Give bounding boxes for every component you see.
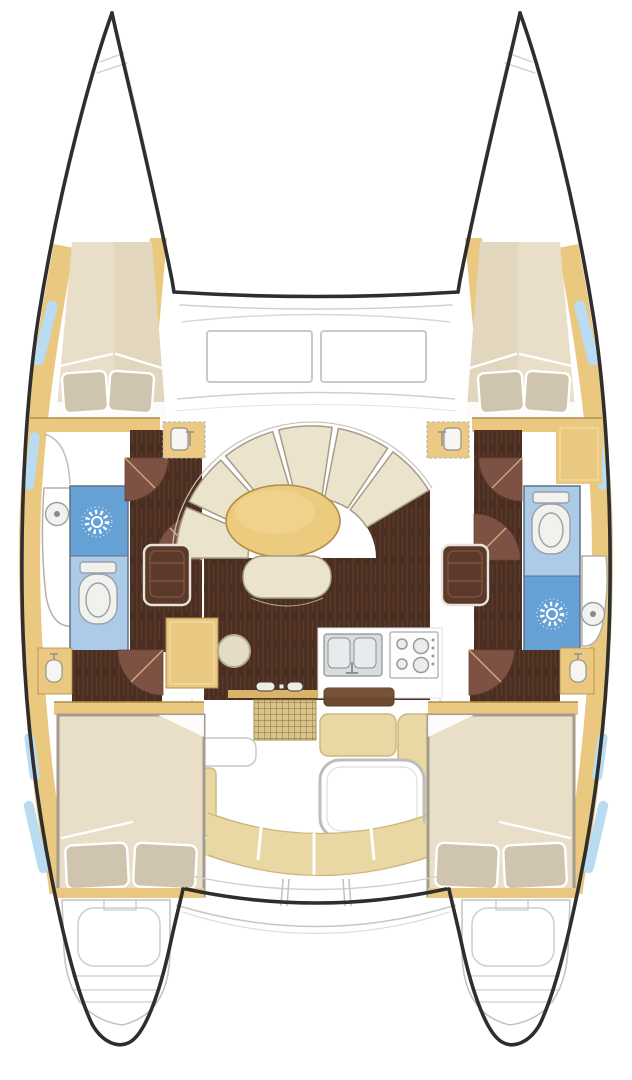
pillow xyxy=(503,842,567,889)
coachroof-front-edge xyxy=(182,315,450,323)
fwd-cabinet-starboard xyxy=(427,422,469,458)
cockpit-grating-grid xyxy=(254,700,316,740)
nav-cabinet xyxy=(166,618,218,688)
port-shower xyxy=(70,486,128,556)
companionway-track xyxy=(256,682,275,691)
pillow xyxy=(65,842,129,889)
transoms xyxy=(62,876,570,1025)
toilet-tank-icon xyxy=(80,562,116,573)
pillow xyxy=(435,842,499,889)
forward-crossbeam xyxy=(174,292,458,297)
deck-plan-svg xyxy=(0,0,632,1080)
toilet-tank-icon xyxy=(533,492,569,503)
port-fwd-bulkhead xyxy=(30,418,160,432)
catamaran-deck-plan xyxy=(0,0,632,1080)
aft-crossbeam-line2 xyxy=(182,912,450,934)
cockpit-locker-seat xyxy=(198,738,256,766)
galley-step-top xyxy=(324,688,394,697)
coachroof xyxy=(175,305,457,411)
pillow xyxy=(478,371,525,414)
stove-knob-icon xyxy=(432,655,435,658)
round-stool xyxy=(218,635,250,667)
pillow xyxy=(524,371,571,414)
cockpit-bench-cushion xyxy=(320,714,396,756)
mini-sink-icon xyxy=(570,660,586,682)
companionway-track xyxy=(287,682,303,691)
burner-icon xyxy=(414,639,429,654)
companionway-latch xyxy=(279,684,284,689)
pillow xyxy=(108,371,155,414)
stbd-aft-bulkhead xyxy=(428,702,578,715)
coachroof-window xyxy=(321,331,426,382)
stove-knob-icon xyxy=(432,647,435,650)
mini-sink-icon xyxy=(444,428,461,450)
aft-cabin-starboard xyxy=(428,648,594,898)
coachroof-window xyxy=(207,331,312,382)
stove-knob-icon xyxy=(432,639,435,642)
mini-sink-icon xyxy=(46,660,62,682)
fwd-cabinet-port xyxy=(163,422,205,458)
aft-crossbeam xyxy=(186,889,446,903)
salon-table-highlight xyxy=(235,490,315,534)
burner-icon xyxy=(397,639,407,649)
basin-drain-icon xyxy=(590,611,596,617)
stbd-shower xyxy=(524,576,580,652)
aft-crossbeam-line1 xyxy=(176,905,456,927)
basin-drain-icon xyxy=(54,511,60,517)
stbd-wardrobe xyxy=(556,424,602,484)
cockpit xyxy=(192,700,440,878)
pillow xyxy=(133,842,197,889)
burner-icon xyxy=(414,658,429,673)
salon-bench xyxy=(243,556,331,598)
aft-bench-cushions xyxy=(208,834,428,855)
port-counter-line xyxy=(44,434,70,484)
mini-sink-icon xyxy=(171,428,188,450)
foredeck-line xyxy=(180,305,452,309)
stove xyxy=(390,632,438,678)
companionway-threshold xyxy=(228,690,318,698)
port-aft-bulkhead xyxy=(54,702,204,715)
stove-knob-icon xyxy=(432,663,435,666)
pillow xyxy=(62,371,109,414)
windshield-base-line2 xyxy=(175,405,457,412)
windshield-base-line xyxy=(177,393,455,400)
burner-icon xyxy=(397,659,407,669)
cockpit-aft-coaming xyxy=(192,876,440,890)
head-starboard xyxy=(474,424,607,652)
sink-basin xyxy=(328,638,350,668)
sink-basin xyxy=(354,638,376,668)
